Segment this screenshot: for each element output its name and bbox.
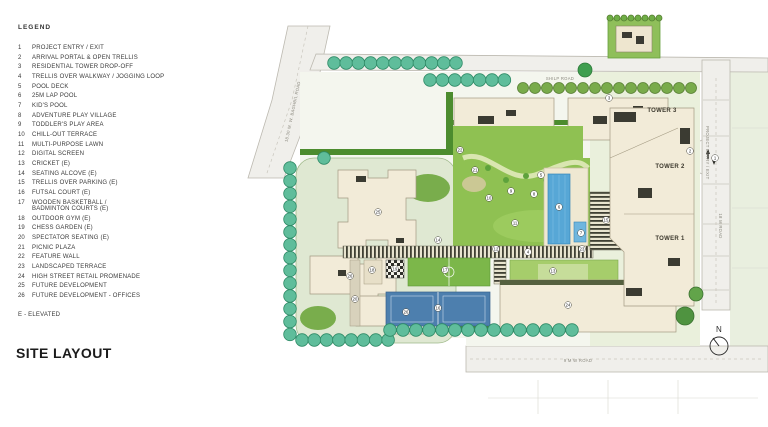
map-marker: 12: [493, 246, 500, 253]
map-marker: 13: [550, 268, 557, 275]
map-marker: 10: [486, 195, 493, 202]
top-road-label: SHILP ROAD: [546, 76, 574, 81]
map-marker: 17: [442, 267, 449, 274]
svg-text:24: 24: [566, 303, 571, 308]
legend-item-label: FUTURE DEVELOPMENT: [32, 283, 107, 289]
legend-item-label: RESIDENTIAL TOWER DROP-OFF: [32, 64, 133, 70]
legend-item: 19CHESS GARDEN (E): [18, 225, 230, 231]
legend-item: 8ADVENTURE PLAY VILLAGE: [18, 113, 230, 119]
legend-item-number: 5: [18, 84, 32, 90]
svg-text:11: 11: [513, 221, 518, 226]
legend-item-number: 1: [18, 45, 32, 51]
legend-item: 21PICNIC PLAZA: [18, 245, 230, 251]
legend-item-label: TRELLIS OVER PARKING (E): [32, 180, 118, 186]
legend-item-number: 4: [18, 74, 32, 80]
legend-item-number: 25: [18, 283, 32, 289]
legend-item-number: 12: [18, 151, 32, 157]
legend-item-number: 10: [18, 132, 32, 138]
legend-item-label: MULTI-PURPOSE LAWN: [32, 142, 103, 148]
legend-item: 17WOODEN BASKETBALL / BADMINTON COURTS (…: [18, 200, 230, 213]
svg-text:18: 18: [370, 268, 375, 273]
map-marker: 11: [512, 220, 519, 227]
legend-item-label: TODDLER'S PLAY AREA: [32, 122, 104, 128]
legend-item: 3RESIDENTIAL TOWER DROP-OFF: [18, 64, 230, 70]
map-marker: 1: [712, 155, 719, 162]
legend-item-number: 8: [18, 113, 32, 119]
legend-item-label: KID'S POOL: [32, 103, 68, 109]
svg-text:26: 26: [404, 310, 409, 315]
legend-panel: LEGEND 1PROJECT ENTRY / EXIT2ARRIVAL POR…: [18, 24, 230, 318]
legend-item-label: PICNIC PLAZA: [32, 245, 75, 251]
svg-text:19: 19: [393, 267, 398, 272]
map-marker: 15: [603, 217, 610, 224]
legend-item: 7KID'S POOL: [18, 103, 230, 109]
legend-item-number: 21: [18, 245, 32, 251]
page-title: SITE LAYOUT: [16, 345, 112, 361]
svg-text:25: 25: [376, 210, 381, 215]
legend-item: 24HIGH STREET RETAIL PROMENADE: [18, 274, 230, 280]
map-marker: 9: [508, 188, 515, 195]
map-marker: 16: [435, 305, 442, 312]
legend-item-label: SPECTATOR SEATING (E): [32, 235, 109, 241]
svg-text:16: 16: [436, 306, 441, 311]
svg-text:26: 26: [348, 274, 353, 279]
svg-text:20: 20: [353, 297, 358, 302]
spectator-seating: [350, 260, 360, 326]
pool-zone: [544, 168, 588, 250]
north-label: N: [716, 325, 722, 334]
legend-title: LEGEND: [18, 24, 230, 31]
legend-item: 625M LAP POOL: [18, 93, 230, 99]
tower-2-label: TOWER 2: [655, 164, 685, 170]
right-road-label: 18 M ROAD: [718, 213, 723, 238]
map-marker: 25: [375, 209, 382, 216]
legend-item-number: 16: [18, 190, 32, 196]
legend-item-number: 15: [18, 180, 32, 186]
legend-item-number: 17: [18, 200, 32, 213]
legend-item-label: DIGITAL SCREEN: [32, 151, 84, 157]
svg-text:14: 14: [436, 238, 441, 243]
map-marker: 5: [538, 172, 545, 179]
map-marker: 24: [565, 302, 572, 309]
legend-item-label: OUTDOOR GYM (E): [32, 216, 91, 222]
legend-item-number: 6: [18, 93, 32, 99]
legend-item-label: CRICKET (E): [32, 161, 70, 167]
site-plan: TOWER 3 TOWER 2 TOWER 1 SHILP ROAD 18.30…: [238, 8, 768, 420]
legend-item-label: LANDSCAPED TERRACE: [32, 264, 107, 270]
north-structure: [608, 18, 660, 58]
legend-item-number: 11: [18, 142, 32, 148]
entry-label: PROJECT ENTRY / EXIT: [705, 126, 710, 180]
svg-text:13: 13: [551, 269, 556, 274]
map-marker: 23: [579, 246, 586, 253]
map-marker: 26: [403, 309, 410, 316]
legend-item-label: PROJECT ENTRY / EXIT: [32, 45, 104, 51]
legend-item: 26FUTURE DEVELOPMENT - OFFICES: [18, 293, 230, 299]
offsite-green: [730, 60, 768, 360]
legend-item: 11MULTI-PURPOSE LAWN: [18, 142, 230, 148]
legend-item-label: HIGH STREET RETAIL PROMENADE: [32, 274, 140, 280]
map-marker: 22: [457, 147, 464, 154]
tower-3-label: TOWER 3: [647, 108, 677, 114]
legend-list: 1PROJECT ENTRY / EXIT2ARRIVAL PORTAL & O…: [18, 45, 230, 299]
map-marker: 4: [525, 249, 532, 256]
map-marker: 18: [369, 267, 376, 274]
legend-item-label: TRELLIS OVER WALKWAY / JOGGING LOOP: [32, 74, 164, 80]
legend-item-label: SEATING ALCOVE (E): [32, 171, 97, 177]
map-marker: 21: [472, 167, 479, 174]
legend-item-label: CHESS GARDEN (E): [32, 225, 93, 231]
map-marker: 7: [578, 230, 585, 237]
legend-item: 15TRELLIS OVER PARKING (E): [18, 180, 230, 186]
svg-text:17: 17: [443, 268, 448, 273]
svg-text:15: 15: [604, 218, 609, 223]
legend-item: 25FUTURE DEVELOPMENT: [18, 283, 230, 289]
legend-item: 20SPECTATOR SEATING (E): [18, 235, 230, 241]
map-marker: 6: [556, 204, 563, 211]
legend-item: 2ARRIVAL PORTAL & OPEN TRELLIS: [18, 55, 230, 61]
legend-item-number: 19: [18, 225, 32, 231]
bottom-road-label: 9 M W ROAD: [564, 358, 592, 363]
svg-text:21: 21: [473, 168, 478, 173]
trellis-walkway: [343, 246, 593, 258]
legend-item-number: 26: [18, 293, 32, 299]
legend-item: 10CHILL-OUT TERRACE: [18, 132, 230, 138]
legend-item-number: 14: [18, 171, 32, 177]
legend-note: E - ELEVATED: [18, 312, 230, 318]
legend-item: 5POOL DECK: [18, 84, 230, 90]
legend-item-label: FEATURE WALL: [32, 254, 80, 260]
map-marker: 8: [531, 191, 538, 198]
legend-item-number: 2: [18, 55, 32, 61]
site-plan-svg: TOWER 3 TOWER 2 TOWER 1 SHILP ROAD 18.30…: [238, 8, 768, 420]
svg-text:22: 22: [458, 148, 463, 153]
legend-item-number: 20: [18, 235, 32, 241]
map-marker: 26: [347, 273, 354, 280]
legend-item: 22FEATURE WALL: [18, 254, 230, 260]
map-marker: 19: [392, 266, 399, 273]
legend-item-number: 13: [18, 161, 32, 167]
legend-item-label: POOL DECK: [32, 84, 69, 90]
tower-1-label: TOWER 1: [655, 236, 685, 242]
legend-item-number: 7: [18, 103, 32, 109]
legend-item-label: CHILL-OUT TERRACE: [32, 132, 97, 138]
legend-item: 1PROJECT ENTRY / EXIT: [18, 45, 230, 51]
legend-item: 13CRICKET (E): [18, 161, 230, 167]
legend-item: 12DIGITAL SCREEN: [18, 151, 230, 157]
legend-item: 16FUTSAL COURT (E): [18, 190, 230, 196]
map-marker: 3: [606, 95, 613, 102]
legend-item-number: 24: [18, 274, 32, 280]
legend-item-number: 22: [18, 254, 32, 260]
svg-text:10: 10: [487, 196, 492, 201]
legend-item: 9TODDLER'S PLAY AREA: [18, 122, 230, 128]
map-marker: 2: [687, 148, 694, 155]
legend-item: 18OUTDOOR GYM (E): [18, 216, 230, 222]
map-marker: 20: [352, 296, 359, 303]
site-layout-page: LEGEND 1PROJECT ENTRY / EXIT2ARRIVAL POR…: [0, 0, 768, 427]
legend-item-number: 23: [18, 264, 32, 270]
legend-item-number: 3: [18, 64, 32, 70]
legend-item-label: ADVENTURE PLAY VILLAGE: [32, 113, 117, 119]
svg-text:23: 23: [580, 247, 585, 252]
legend-item-number: 9: [18, 122, 32, 128]
legend-item-label: FUTSAL COURT (E): [32, 190, 90, 196]
legend-item-number: 18: [18, 216, 32, 222]
svg-text:12: 12: [494, 247, 499, 252]
map-marker: 14: [435, 237, 442, 244]
legend-item: 4TRELLIS OVER WALKWAY / JOGGING LOOP: [18, 74, 230, 80]
compass-needle: [713, 338, 719, 346]
legend-item: 14SEATING ALCOVE (E): [18, 171, 230, 177]
legend-item-label: FUTURE DEVELOPMENT - OFFICES: [32, 293, 140, 299]
legend-item-label: ARRIVAL PORTAL & OPEN TRELLIS: [32, 55, 138, 61]
legend-item-label: 25M LAP POOL: [32, 93, 77, 99]
legend-item: 23LANDSCAPED TERRACE: [18, 264, 230, 270]
legend-item-label: WOODEN BASKETBALL / BADMINTON COURTS (E): [32, 200, 108, 213]
